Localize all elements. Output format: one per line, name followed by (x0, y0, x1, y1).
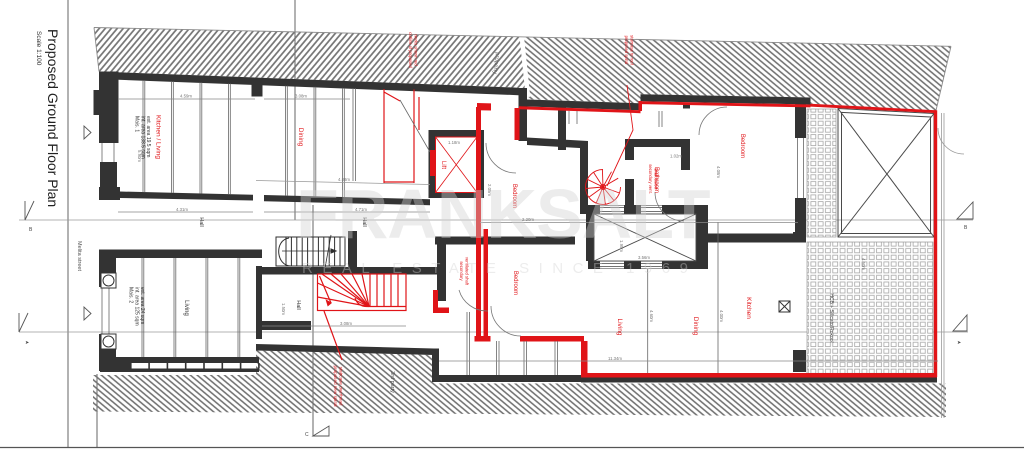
svg-text:Scale 1:100: Scale 1:100 (35, 31, 42, 66)
svg-text:staircase overhead: staircase overhead (338, 367, 343, 406)
svg-text:Hall: Hall (295, 300, 301, 309)
svg-text:proposed new spiral: proposed new spiral (333, 365, 338, 406)
svg-text:4.59m: 4.59m (180, 94, 192, 99)
svg-text:Dining: Dining (297, 128, 304, 147)
svg-text:FRANKSALT: FRANKSALT (296, 175, 710, 253)
svg-text:➤: ➤ (25, 340, 29, 346)
svg-text:4.60m: 4.60m (649, 310, 654, 322)
svg-text:3rd party: 3rd party (389, 371, 395, 393)
svg-text:Mais. 1: Mais. 1 (134, 116, 140, 132)
svg-text:➤: ➤ (957, 340, 961, 346)
svg-text:ext. area 19.5 sqm: ext. area 19.5 sqm (145, 116, 151, 157)
svg-text:REAL ESTATE SINCE 1969: REAL ESTATE SINCE 1969 (302, 260, 697, 277)
svg-text:1.50m: 1.50m (281, 303, 286, 315)
svg-text:4.08m: 4.08m (716, 166, 721, 178)
svg-text:Kitchen / Living: Kitchen / Living (155, 115, 162, 159)
svg-text:Kitchen: Kitchen (745, 297, 752, 319)
svg-text:3.08m: 3.08m (295, 94, 307, 99)
svg-text:11.34m: 11.34m (608, 356, 622, 361)
svg-text:Lift: Lift (440, 161, 446, 169)
svg-text:Mais. 2: Mais. 2 (128, 287, 134, 303)
svg-text:works shown red: works shown red (414, 34, 419, 66)
svg-text:proposed spiral: proposed spiral (624, 36, 629, 65)
svg-text:HCB + Silicato/Rokool: HCB + Silicato/Rokool (828, 293, 834, 342)
svg-text:Hall: Hall (198, 217, 204, 226)
svg-text:Living: Living (616, 319, 623, 336)
svg-text:int. area 138.5 sqm: int. area 138.5 sqm (139, 116, 145, 159)
svg-text:Melita street: Melita street (76, 241, 82, 271)
svg-text:Bedroom: Bedroom (739, 134, 745, 158)
svg-text:1.18m: 1.18m (448, 140, 460, 145)
svg-text:4.50m: 4.50m (861, 258, 866, 270)
svg-text:staircase to roof: staircase to roof (630, 35, 635, 66)
svg-text:4.00m: 4.00m (719, 310, 724, 322)
svg-text:3.08m: 3.08m (340, 321, 352, 326)
svg-text:int. area 125 sqm: int. area 125 sqm (133, 287, 139, 326)
svg-text:outline of proposed: outline of proposed (408, 32, 413, 68)
svg-text:4.31m: 4.31m (176, 207, 188, 212)
svg-text:Dining: Dining (692, 317, 699, 336)
svg-text:Proposed Ground Floor Plan: Proposed Ground Floor Plan (45, 29, 61, 207)
svg-text:Living: Living (183, 300, 189, 316)
svg-text:ext. area 24 sqm: ext. area 24 sqm (139, 287, 145, 324)
svg-text:C: C (305, 432, 309, 438)
svg-text:1.02m: 1.02m (670, 154, 682, 159)
